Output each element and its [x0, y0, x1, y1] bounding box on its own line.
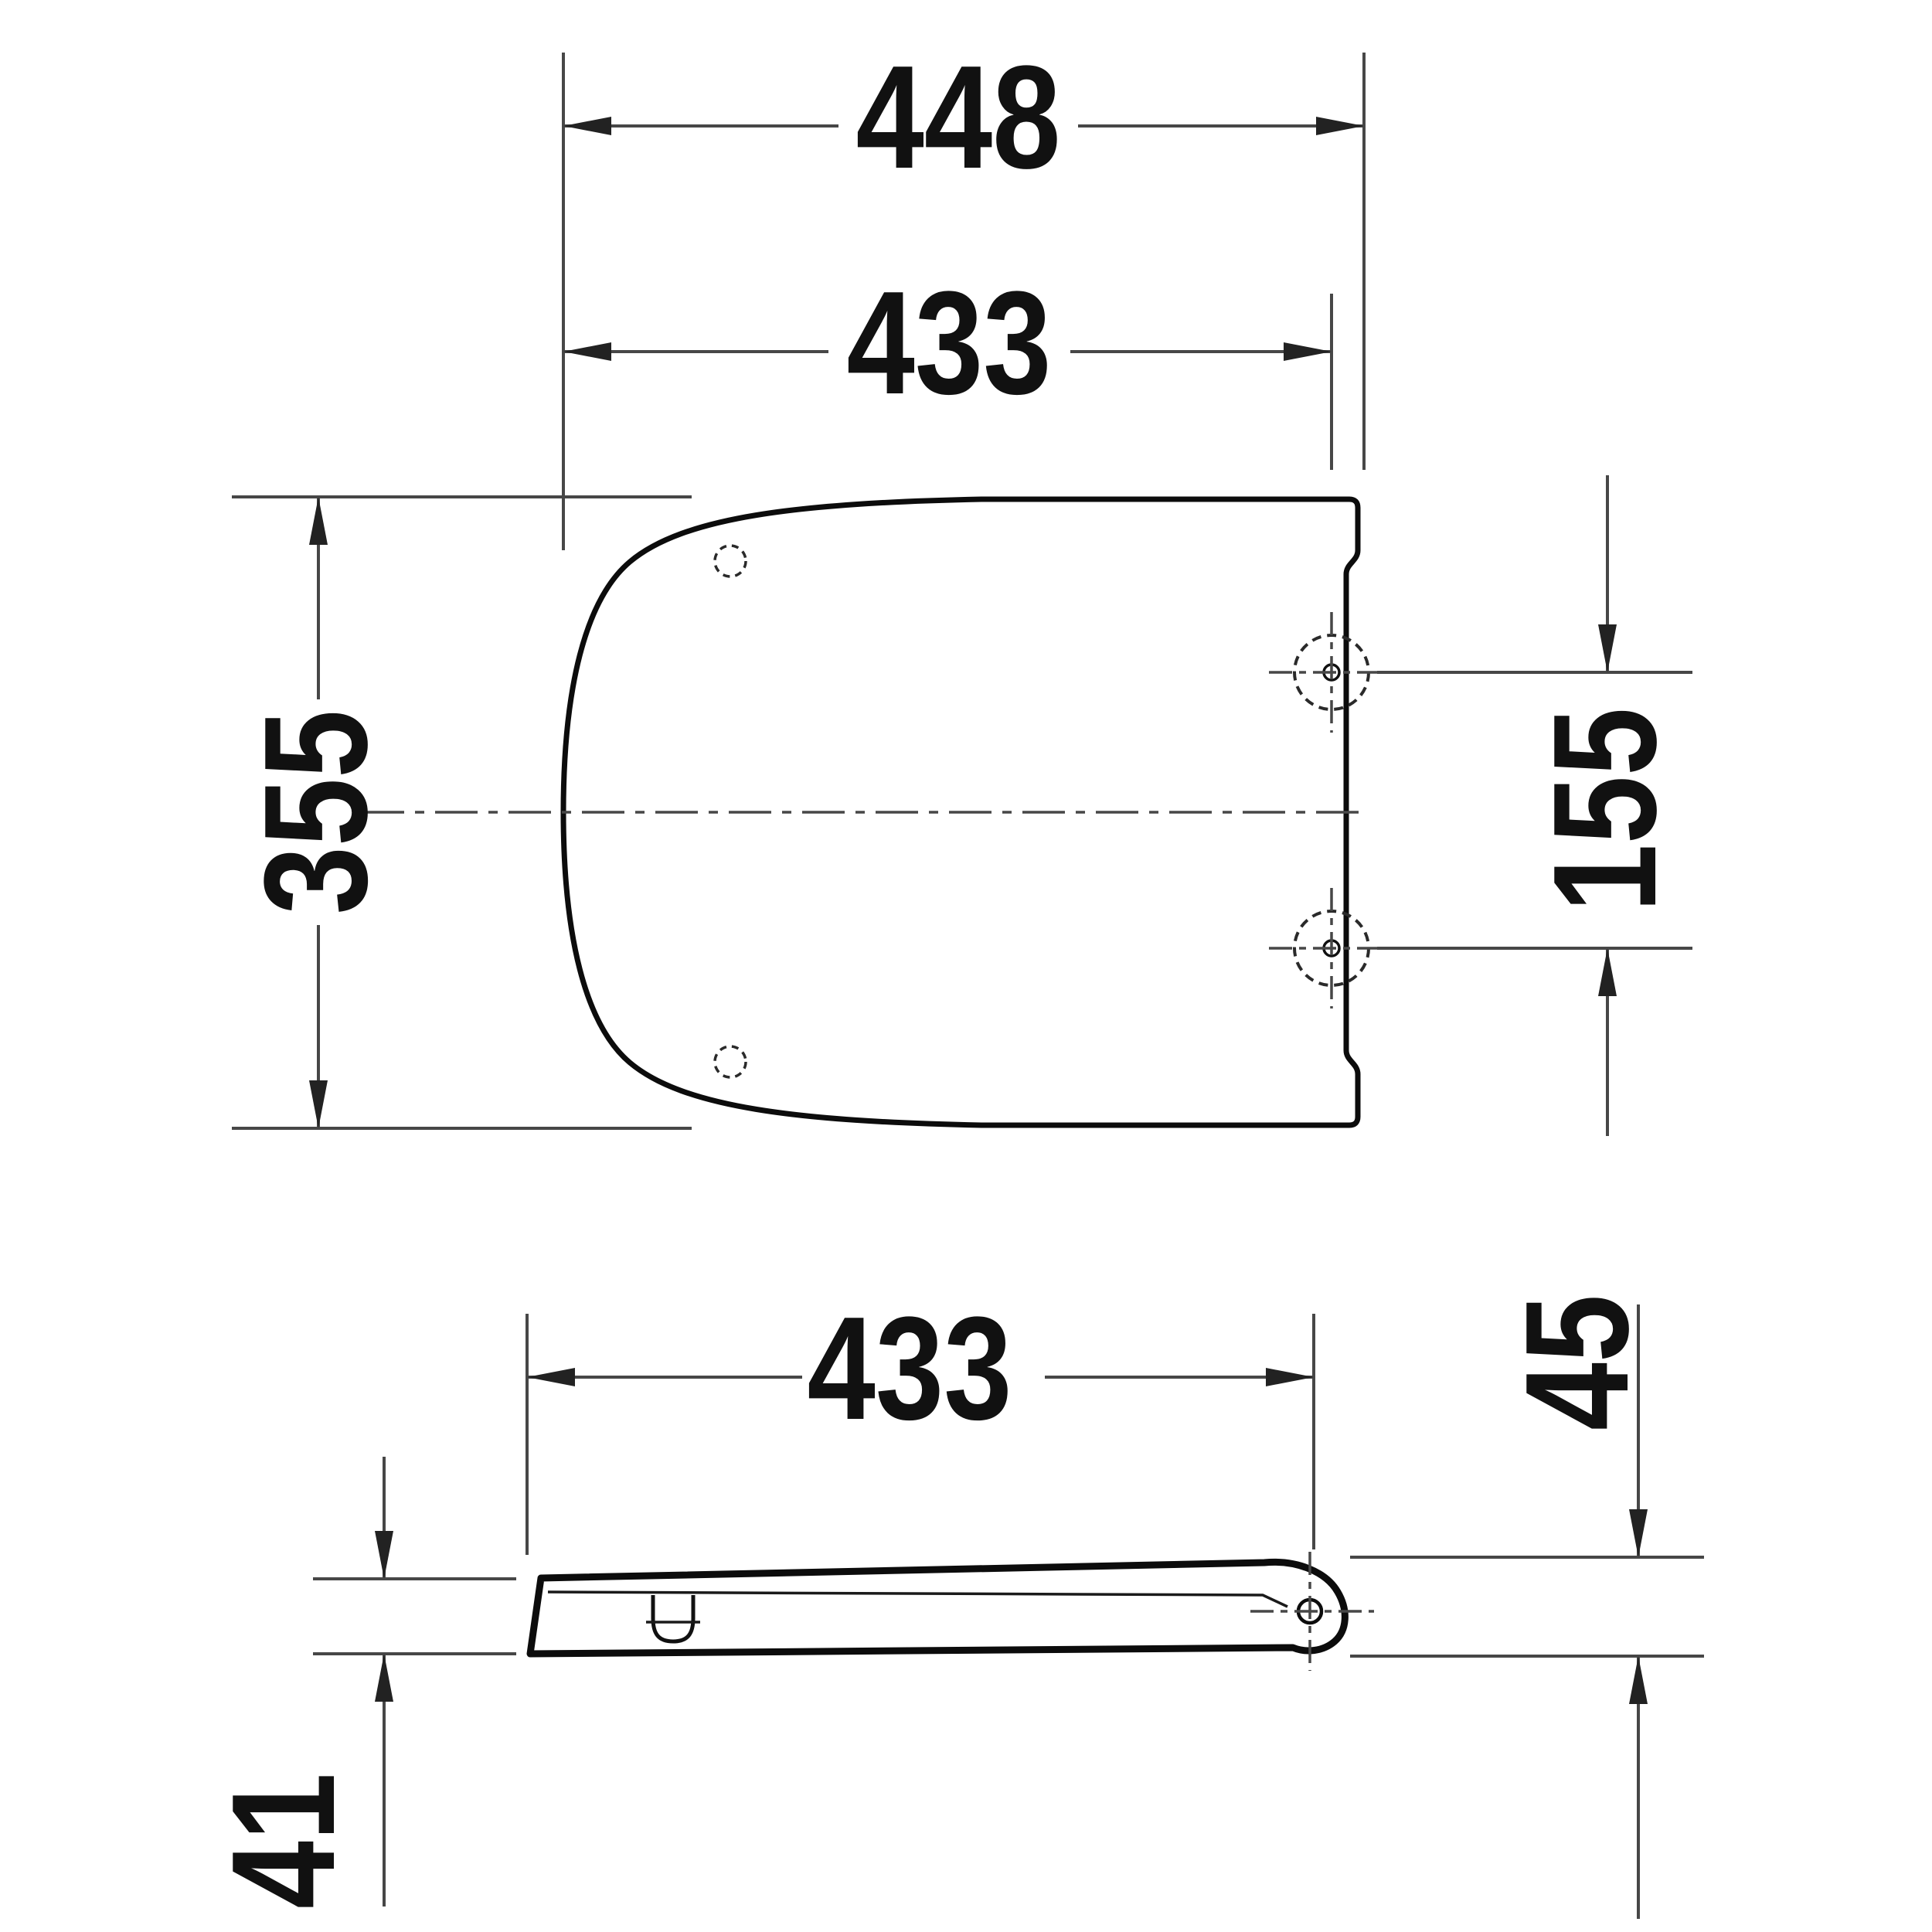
dim-label-41: 41 [202, 1773, 366, 1909]
side-view: 433 45 41 [202, 1287, 1704, 1919]
dimension-overall-length: 448 [563, 36, 1364, 199]
dim-label-433-bottom: 433 [808, 1287, 1012, 1451]
top-view: 448 433 355 155 [232, 36, 1692, 1136]
dim-label-355: 355 [234, 710, 398, 915]
dim-label-433-top: 433 [847, 261, 1052, 425]
dimension-rear-height: 45 [1495, 1294, 1659, 1919]
dimension-length-to-hinge: 433 [527, 1287, 1314, 1451]
dim-label-448: 448 [856, 36, 1061, 199]
toilet-seat-dimension-diagram: 448 433 355 155 [0, 0, 1932, 1932]
dimension-overall-width: 355 [234, 497, 398, 1128]
dimension-front-to-hinge: 433 [563, 261, 1332, 425]
dim-label-155: 155 [1523, 708, 1687, 913]
dimension-hinge-hole-spacing: 155 [1523, 475, 1687, 1136]
technical-drawing-page: 448 433 355 155 [0, 0, 1932, 1932]
dimension-front-height: 41 [202, 1457, 384, 1909]
dim-label-45: 45 [1495, 1294, 1659, 1430]
